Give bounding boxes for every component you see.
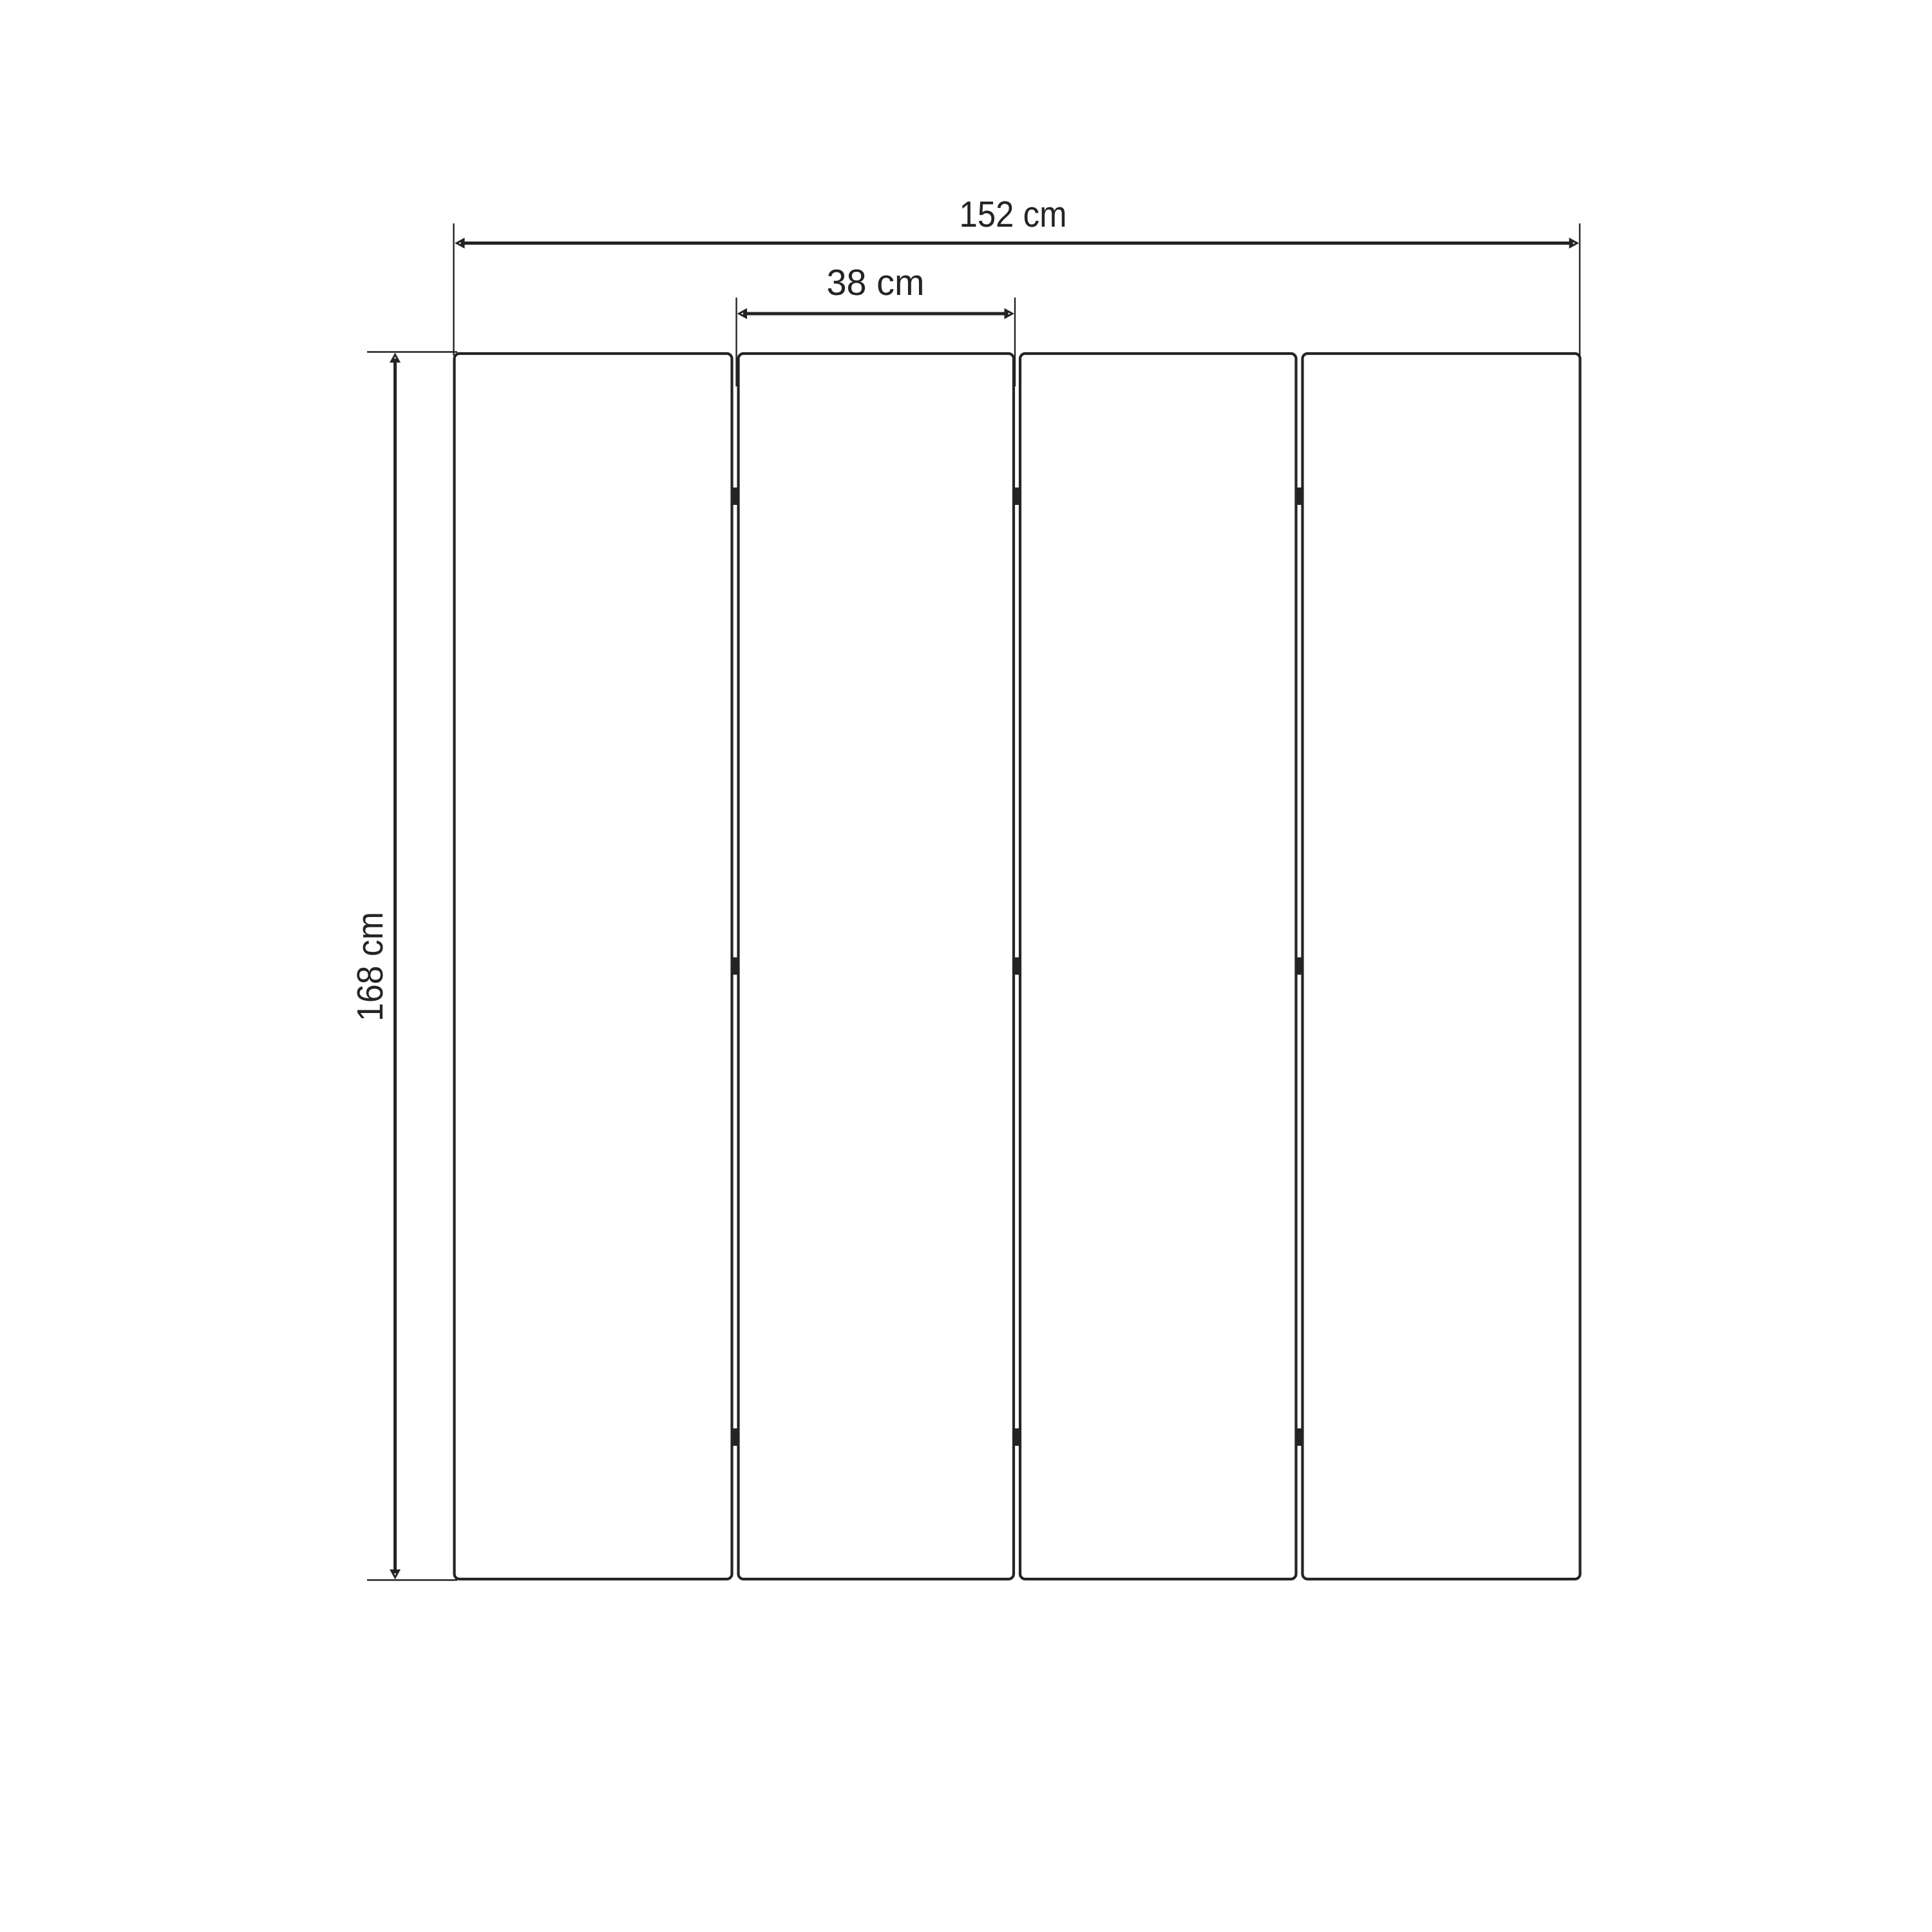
svg-text:168 cm: 168 cm — [350, 912, 391, 1021]
svg-text:152 cm: 152 cm — [960, 194, 1067, 235]
svg-text:38 cm: 38 cm — [827, 262, 925, 303]
